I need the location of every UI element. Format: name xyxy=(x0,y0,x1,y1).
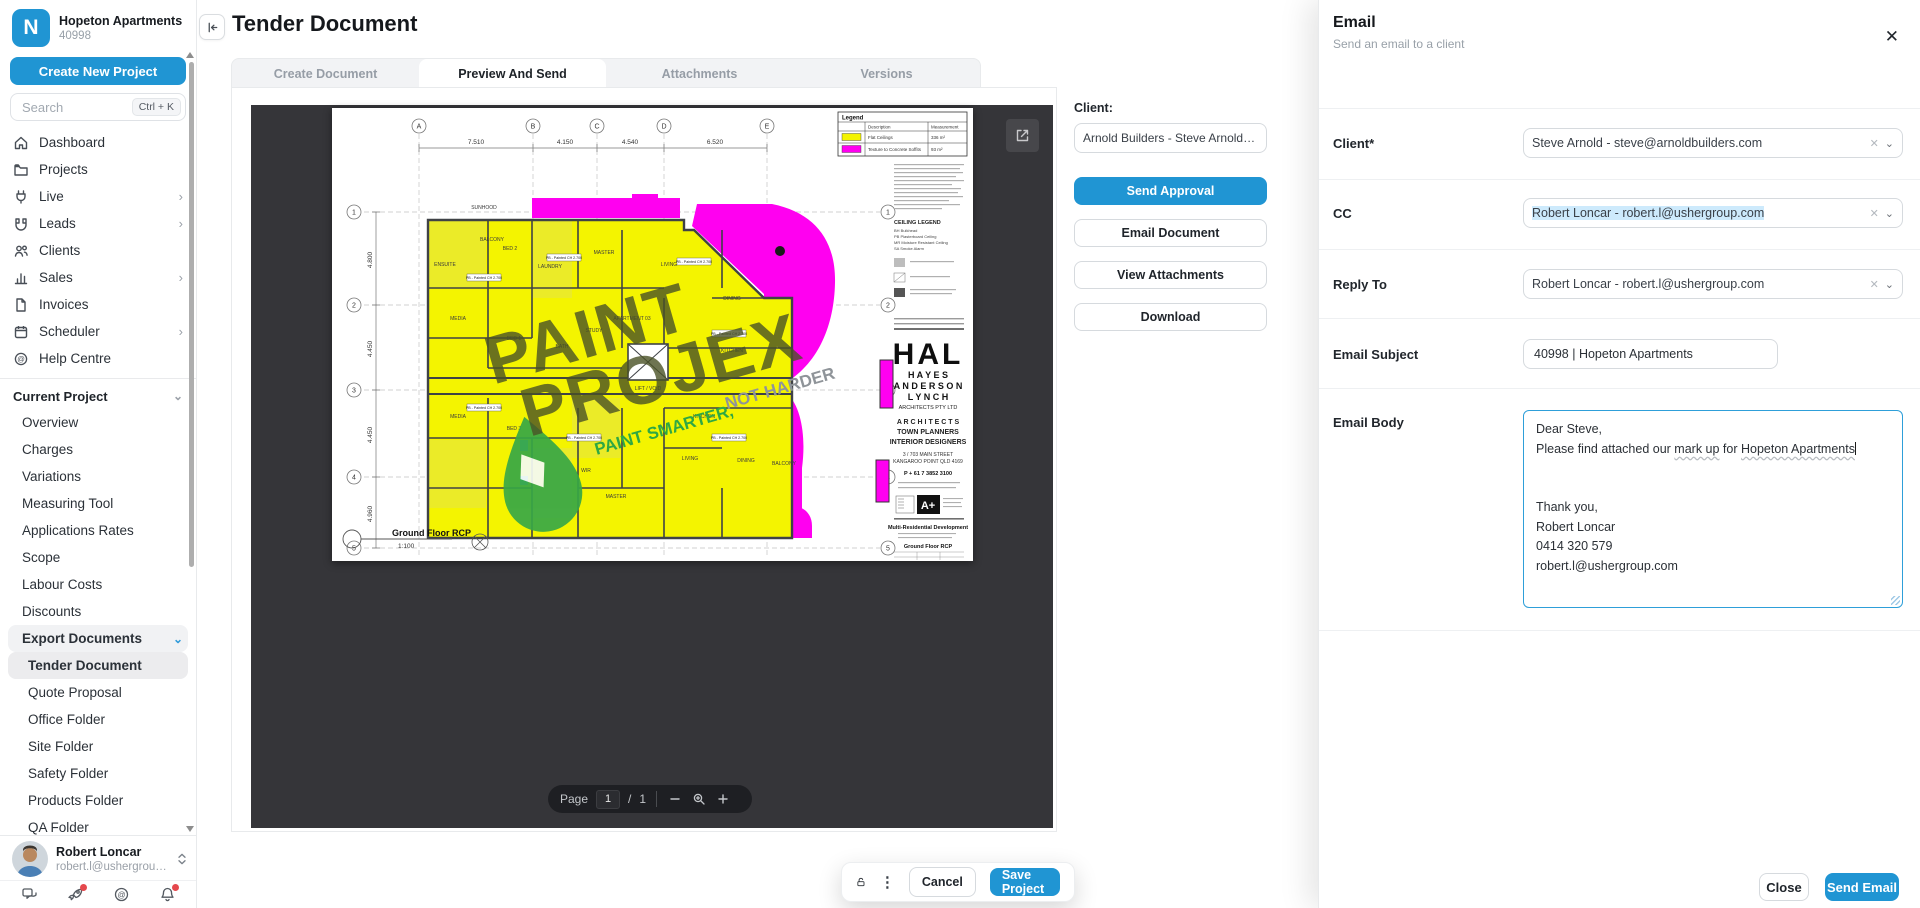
svg-text:H A Y E S: H A Y E S xyxy=(908,370,948,380)
svg-text:3 / 703 MAIN STREET: 3 / 703 MAIN STREET xyxy=(903,452,953,458)
svg-text:1:100: 1:100 xyxy=(398,543,415,550)
sidebar-item-office-folder[interactable]: Office Folder xyxy=(8,706,188,733)
svg-text:5: 5 xyxy=(886,546,890,553)
svg-text:LIVING: LIVING xyxy=(682,456,699,462)
svg-text:A: A xyxy=(417,124,422,131)
sidebar-item-quote-proposal[interactable]: Quote Proposal xyxy=(8,679,188,706)
current-project-section[interactable]: Current Project ⌄ xyxy=(8,383,188,409)
sidebar-scroll-down-arrow[interactable] xyxy=(186,826,194,832)
sidebar-item-export-documents[interactable]: Export Documents ⌄ xyxy=(8,625,188,652)
help-circle-icon[interactable]: @ xyxy=(112,886,130,904)
sidebar-item-label: Leads xyxy=(39,216,76,231)
bell-icon[interactable] xyxy=(158,886,176,904)
zoom-out-icon[interactable] xyxy=(667,793,683,805)
sidebar-item-label: Projects xyxy=(39,162,88,177)
send-approval-button[interactable]: Send Approval xyxy=(1074,177,1267,205)
avatar xyxy=(12,841,48,877)
svg-text:3: 3 xyxy=(352,388,356,395)
chevron-right-icon: › xyxy=(179,217,183,230)
divider xyxy=(1319,179,1920,180)
floor-plan-drawing: 7.510 4.150 4.540 6.520 4.800 4.450 4.45… xyxy=(332,108,973,561)
sidebar-item-site-folder[interactable]: Site Folder xyxy=(8,733,188,760)
svg-text:ENSUITE: ENSUITE xyxy=(434,262,456,268)
sidebar-item-leads[interactable]: Leads › xyxy=(8,210,188,237)
lock-open-icon[interactable] xyxy=(856,874,866,890)
svg-text:WIR: WIR xyxy=(581,468,591,474)
svg-text:BED 2: BED 2 xyxy=(503,246,518,252)
svg-text:Texture to Concrete Soffits: Texture to Concrete Soffits xyxy=(868,147,922,152)
email-panel-subtitle: Send an email to a client xyxy=(1333,37,1464,51)
notification-dot xyxy=(80,884,87,891)
email-panel-title: Email xyxy=(1333,14,1376,32)
chat-icon[interactable] xyxy=(20,886,38,904)
plan-legend: Legend Description Measurement Flat Ceil… xyxy=(838,112,967,156)
project-header: N Hopeton Apartments 40998 xyxy=(0,0,196,53)
sidebar-item-applications-rates[interactable]: Applications Rates xyxy=(8,517,188,544)
svg-text:4: 4 xyxy=(352,475,356,482)
subject-field-label: Email Subject xyxy=(1333,347,1418,362)
sidebar-divider xyxy=(0,378,196,379)
svg-text:HAL: HAL xyxy=(893,338,964,371)
svg-text:Measurement: Measurement xyxy=(931,125,959,130)
divider xyxy=(1319,388,1920,389)
page-total: 1 xyxy=(639,792,646,806)
email-document-button[interactable]: Email Document xyxy=(1074,219,1267,247)
create-new-project-button[interactable]: Create New Project xyxy=(10,57,186,85)
svg-text:PB - Painted CH 2.700: PB - Painted CH 2.700 xyxy=(676,260,712,264)
svg-text:PB - Painted CH 2.700: PB - Painted CH 2.700 xyxy=(711,436,747,440)
project-code: 40998 xyxy=(59,30,182,42)
client-field-dropdown[interactable]: Steve Arnold - steve@arnoldbuilders.com … xyxy=(1523,128,1903,158)
revision-block xyxy=(894,318,964,330)
sidebar-item-help-centre[interactable]: @ Help Centre xyxy=(8,345,188,372)
svg-text:1: 1 xyxy=(352,210,356,217)
svg-text:@: @ xyxy=(117,890,125,899)
svg-text:BALCONY: BALCONY xyxy=(772,461,797,467)
svg-text:E: E xyxy=(765,124,770,131)
svg-text:INTERIOR DESIGNERS: INTERIOR DESIGNERS xyxy=(890,439,967,446)
svg-text:336 m²: 336 m² xyxy=(931,135,946,140)
svg-text:B: B xyxy=(531,124,536,131)
plan-preview-page: 7.510 4.150 4.540 6.520 4.800 4.450 4.45… xyxy=(332,108,973,561)
divider xyxy=(1319,249,1920,250)
pdf-page-controls: Page 1 / 1 xyxy=(548,785,752,813)
sidebar-collapse-button[interactable] xyxy=(199,14,225,40)
sidebar-item-live[interactable]: Live › xyxy=(8,183,188,210)
app-window: N Hopeton Apartments 40998 Create New Pr… xyxy=(0,0,1920,908)
svg-text:KANGAROO POINT QLD 4169: KANGAROO POINT QLD 4169 xyxy=(893,459,963,465)
svg-text:A N D E R S O N: A N D E R S O N xyxy=(894,381,963,391)
svg-text:A R C H I T E C T S: A R C H I T E C T S xyxy=(897,419,960,426)
sidebar-item-safety-folder[interactable]: Safety Folder xyxy=(8,760,188,787)
notification-dot xyxy=(172,884,179,891)
svg-text:PB - Painted CH 2.700: PB - Painted CH 2.700 xyxy=(546,256,582,260)
chevron-right-icon: › xyxy=(179,325,183,338)
select-chevrons-icon xyxy=(176,852,188,866)
tab-versions[interactable]: Versions xyxy=(793,59,980,88)
svg-text:SA Smoke Alarm: SA Smoke Alarm xyxy=(894,246,925,251)
svg-text:LIVING: LIVING xyxy=(661,262,678,268)
client-dropdown-value: Arnold Builders - Steve Arnold - steve@a… xyxy=(1083,131,1258,145)
page-separator: / xyxy=(628,792,631,806)
sidebar-item-clients[interactable]: Clients xyxy=(8,237,188,264)
user-email: robert.l@ushergroup.... xyxy=(56,861,168,873)
svg-text:D: D xyxy=(661,124,666,131)
svg-text:Ground Floor RCP: Ground Floor RCP xyxy=(904,544,953,550)
svg-text:6.520: 6.520 xyxy=(707,139,724,146)
svg-text:A+: A+ xyxy=(921,500,935,512)
reply-to-field-label: Reply To xyxy=(1333,277,1387,292)
sidebar-footer-icons: @ xyxy=(0,880,196,908)
rocket-icon[interactable] xyxy=(66,886,84,904)
aplus-logo: A+ xyxy=(896,495,963,514)
client-dropdown[interactable]: Arnold Builders - Steve Arnold - steve@a… xyxy=(1074,123,1267,153)
svg-text:Description: Description xyxy=(868,125,891,130)
user-menu[interactable]: Robert Loncar robert.l@ushergroup.... xyxy=(0,835,196,881)
close-button[interactable]: Close xyxy=(1759,873,1809,901)
svg-text:MEDIA: MEDIA xyxy=(450,414,467,420)
svg-text:4.800: 4.800 xyxy=(367,251,374,268)
svg-text:@: @ xyxy=(17,354,25,363)
tab-create-document[interactable]: Create Document xyxy=(232,59,419,88)
page-number-input[interactable]: 1 xyxy=(596,790,620,809)
calendar-icon xyxy=(13,324,29,340)
svg-text:Multi-Residential Development: Multi-Residential Development xyxy=(888,525,968,531)
svg-text:MASTER: MASTER xyxy=(594,250,615,256)
zoom-in-icon[interactable] xyxy=(715,793,731,805)
svg-text:SUNHOOD: SUNHOOD xyxy=(471,205,497,211)
sidebar-item-projects[interactable]: Projects xyxy=(8,156,188,183)
body-line: 0414 320 579 xyxy=(1536,537,1890,557)
send-email-button[interactable]: Send Email xyxy=(1825,873,1899,901)
svg-text:MASTER: MASTER xyxy=(606,494,627,500)
reply-to-dropdown[interactable]: Robert Loncar - robert.l@ushergroup.com … xyxy=(1523,269,1903,299)
divider xyxy=(1319,630,1920,631)
clear-icon[interactable]: ✕ xyxy=(1864,207,1885,220)
download-button[interactable]: Download xyxy=(1074,303,1267,331)
svg-text:PB - Painted CH 2.700: PB - Painted CH 2.700 xyxy=(466,406,502,410)
project-info: Hopeton Apartments 40998 xyxy=(59,14,182,42)
divider xyxy=(1319,318,1920,319)
notes-block xyxy=(894,164,964,209)
client-actions-column: Client: Arnold Builders - Steve Arnold -… xyxy=(1074,101,1267,331)
cc-field-dropdown[interactable]: Robert Loncar - robert.l@ushergroup.com … xyxy=(1523,198,1903,228)
body-line: Dear Steve, xyxy=(1536,420,1890,440)
clear-icon[interactable]: ✕ xyxy=(1864,278,1885,291)
client-field-value: Steve Arnold - steve@arnoldbuilders.com xyxy=(1532,136,1762,150)
svg-text:MEDIA: MEDIA xyxy=(450,316,467,322)
sidebar-item-label: Scheduler xyxy=(39,324,100,339)
ceiling-legend: CEILING LEGEND BH Bulkhead PB Plasterboa… xyxy=(894,220,956,297)
svg-text:MR Moisture Resistant Ceiling: MR Moisture Resistant Ceiling xyxy=(894,240,948,245)
svg-text:CEILING LEGEND: CEILING LEGEND xyxy=(894,220,941,226)
plug-icon xyxy=(13,189,29,205)
text-cursor xyxy=(1855,442,1856,455)
sidebar-item-variations[interactable]: Variations xyxy=(8,463,188,490)
magnet-icon xyxy=(13,216,29,232)
sidebar-item-scope[interactable]: Scope xyxy=(8,544,188,571)
svg-text:4.450: 4.450 xyxy=(367,340,374,357)
svg-text:Flat Ceilings: Flat Ceilings xyxy=(868,135,894,140)
cancel-button[interactable]: Cancel xyxy=(909,867,976,897)
body-line: Please find attached our mark up for Hop… xyxy=(1536,440,1890,460)
body-line: Thank you, xyxy=(1536,498,1890,518)
svg-text:C: C xyxy=(594,124,599,131)
tab-preview-and-send[interactable]: Preview And Send xyxy=(419,59,606,88)
email-body-textarea[interactable]: Dear Steve, Please find attached our mar… xyxy=(1523,410,1903,608)
svg-text:Ground Floor RCP: Ground Floor RCP xyxy=(392,528,471,538)
client-field-label: Client* xyxy=(1333,136,1374,151)
chevron-down-icon: ⌄ xyxy=(1885,207,1894,220)
sidebar-item-scheduler[interactable]: Scheduler › xyxy=(8,318,188,345)
sidebar-item-label: Dashboard xyxy=(39,135,105,150)
chevron-right-icon: › xyxy=(179,271,183,284)
user-name: Robert Loncar xyxy=(56,844,168,860)
chevron-right-icon: › xyxy=(179,190,183,203)
svg-text:LAUNDRY: LAUNDRY xyxy=(538,264,562,270)
chevron-down-icon: ⌄ xyxy=(173,632,183,646)
clear-icon[interactable]: ✕ xyxy=(1864,137,1885,150)
sidebar: N Hopeton Apartments 40998 Create New Pr… xyxy=(0,0,197,908)
chevron-down-icon: ⌄ xyxy=(173,389,183,403)
svg-text:4.960: 4.960 xyxy=(367,505,374,522)
svg-text:BALCONY: BALCONY xyxy=(480,237,505,243)
svg-text:4.450: 4.450 xyxy=(367,426,374,443)
search-shortcut-badge: Ctrl + K xyxy=(132,98,181,116)
close-icon[interactable]: ✕ xyxy=(1885,28,1899,45)
sidebar-scrollbar[interactable] xyxy=(189,62,194,567)
sidebar-item-label: Sales xyxy=(39,270,73,285)
users-icon xyxy=(13,243,29,259)
sidebar-item-label: Help Centre xyxy=(39,351,111,366)
architect-title-block: HAL H A Y E S A N D E R S O N L Y N C H … xyxy=(888,338,968,560)
svg-text:2: 2 xyxy=(352,303,356,310)
sidebar-item-measuring-tool[interactable]: Measuring Tool xyxy=(8,490,188,517)
document-icon xyxy=(13,297,29,313)
svg-text:93 m²: 93 m² xyxy=(931,147,943,152)
svg-text:5: 5 xyxy=(352,546,356,553)
svg-text:4.540: 4.540 xyxy=(622,139,639,146)
svg-text:PB - Painted CH 2.700: PB - Painted CH 2.700 xyxy=(466,276,502,280)
tab-bar: Create Document Preview And Send Attachm… xyxy=(231,58,981,88)
sidebar-item-dashboard[interactable]: Dashboard xyxy=(8,129,188,156)
svg-text:DINING: DINING xyxy=(723,296,741,302)
svg-text:Legend: Legend xyxy=(842,116,864,122)
page-title: Tender Document xyxy=(232,11,417,37)
reply-to-value: Robert Loncar - robert.l@ushergroup.com xyxy=(1532,277,1764,291)
svg-text:1: 1 xyxy=(886,210,890,217)
help-icon: @ xyxy=(13,351,29,367)
sidebar-item-label: Invoices xyxy=(39,297,89,312)
svg-text:TOWN PLANNERS: TOWN PLANNERS xyxy=(897,429,959,436)
chevron-down-icon: ⌄ xyxy=(1885,137,1894,150)
cc-field-label: CC xyxy=(1333,206,1352,221)
svg-text:PB Plasterboard Ceiling: PB Plasterboard Ceiling xyxy=(894,234,936,239)
chevron-down-icon: ⌄ xyxy=(1885,278,1894,291)
app-logo-icon: N xyxy=(12,9,50,47)
subject-input[interactable] xyxy=(1523,339,1778,369)
zoom-magnifier-icon[interactable] xyxy=(691,792,707,806)
bar-chart-icon xyxy=(13,270,29,286)
resize-handle[interactable] xyxy=(1891,596,1900,605)
save-project-button[interactable]: Save Project xyxy=(990,868,1060,896)
sidebar-item-charges[interactable]: Charges xyxy=(8,436,188,463)
sidebar-item-discounts[interactable]: Discounts xyxy=(8,598,188,625)
svg-text:P + 61 7 3852 3100: P + 61 7 3852 3100 xyxy=(904,471,952,477)
sidebar-item-sales[interactable]: Sales › xyxy=(8,264,188,291)
sidebar-item-tender-document[interactable]: Tender Document xyxy=(8,652,188,679)
svg-text:DINING: DINING xyxy=(737,458,755,464)
body-field-label: Email Body xyxy=(1333,415,1404,430)
svg-text:7.510: 7.510 xyxy=(468,139,485,146)
svg-text:BH Bulkhead: BH Bulkhead xyxy=(894,228,917,233)
more-options-icon[interactable]: ⋮ xyxy=(880,873,895,891)
body-line: robert.l@ushergroup.com xyxy=(1536,557,1890,577)
search-box[interactable]: Ctrl + K xyxy=(10,93,186,121)
user-info: Robert Loncar robert.l@ushergroup.... xyxy=(56,844,168,872)
sidebar-scroll-up-arrow[interactable] xyxy=(186,52,194,58)
page-label: Page xyxy=(560,792,588,806)
svg-text:2: 2 xyxy=(886,303,890,310)
sidebar-item-overview[interactable]: Overview xyxy=(8,409,188,436)
expand-preview-button[interactable] xyxy=(1006,119,1039,152)
search-input[interactable] xyxy=(20,99,128,116)
svg-text:ARCHITECTS PTY LTD: ARCHITECTS PTY LTD xyxy=(899,405,958,411)
email-panel: Email Send an email to a client ✕ Client… xyxy=(1318,0,1920,908)
divider xyxy=(656,791,657,807)
cc-field-value: Robert Loncar - robert.l@ushergroup.com xyxy=(1532,206,1764,220)
current-project-label: Current Project xyxy=(13,389,108,404)
tab-attachments[interactable]: Attachments xyxy=(606,59,793,88)
sidebar-item-label: Clients xyxy=(39,243,80,258)
project-name: Hopeton Apartments xyxy=(59,14,182,30)
divider xyxy=(1319,108,1920,109)
folder-icon xyxy=(13,162,29,178)
sidebar-item-labour-costs[interactable]: Labour Costs xyxy=(8,571,188,598)
sidebar-item-label: Live xyxy=(39,189,64,204)
sidebar-item-invoices[interactable]: Invoices xyxy=(8,291,188,318)
body-line: Robert Loncar xyxy=(1536,518,1890,538)
floating-action-bar: ⋮ Cancel Save Project xyxy=(841,862,1075,902)
view-attachments-button[interactable]: View Attachments xyxy=(1074,261,1267,289)
client-label: Client: xyxy=(1074,101,1267,115)
export-documents-label: Export Documents xyxy=(22,631,142,646)
svg-text:4.150: 4.150 xyxy=(557,139,574,146)
svg-text:L Y N C H: L Y N C H xyxy=(908,392,949,402)
sidebar-item-products-folder[interactable]: Products Folder xyxy=(8,787,188,814)
home-icon xyxy=(13,135,29,151)
